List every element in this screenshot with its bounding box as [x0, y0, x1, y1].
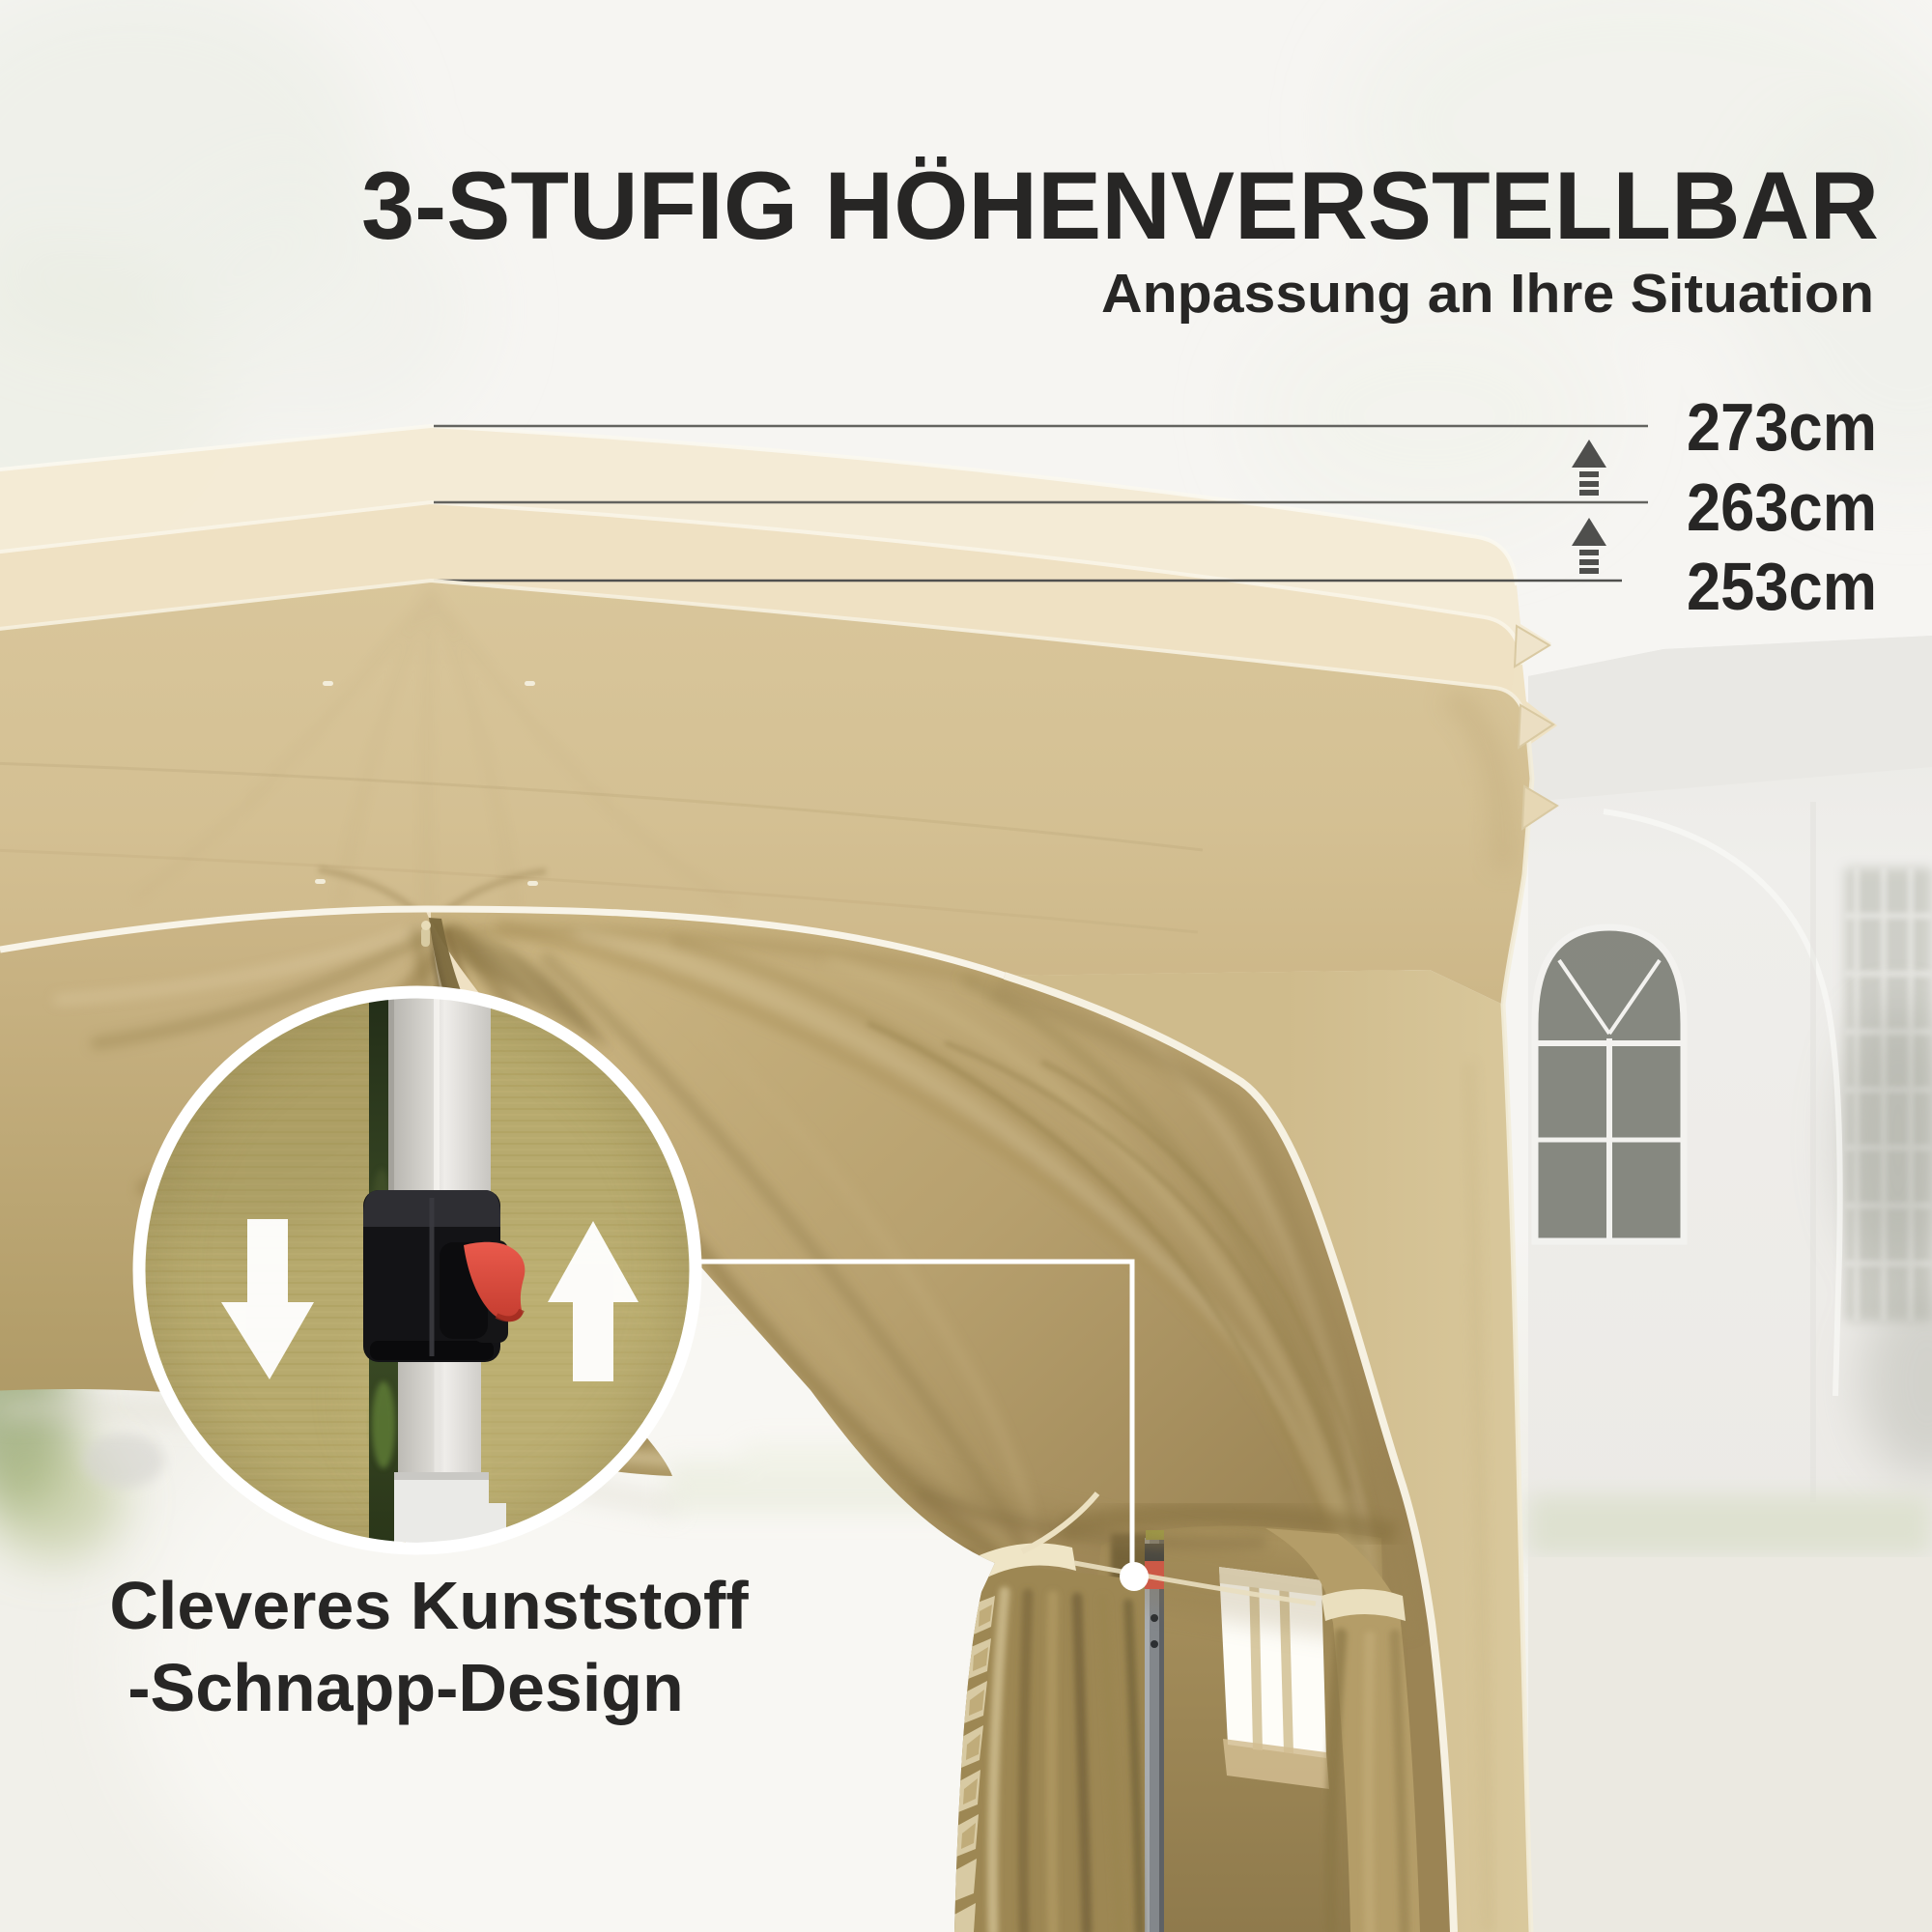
svg-text:Cleveres Kunststoff: Cleveres Kunststoff [109, 1568, 749, 1643]
svg-text:3-STUFIG HÖHENVERSTELLBAR: 3-STUFIG HÖHENVERSTELLBAR [361, 152, 1879, 259]
svg-text:-Schnapp-Design: -Schnapp-Design [128, 1650, 684, 1725]
svg-text:263cm: 263cm [1687, 469, 1877, 545]
svg-text:273cm: 273cm [1687, 389, 1877, 465]
svg-text:253cm: 253cm [1687, 549, 1877, 624]
svg-text:Anpassung an Ihre Situation: Anpassung an Ihre Situation [1101, 263, 1874, 325]
